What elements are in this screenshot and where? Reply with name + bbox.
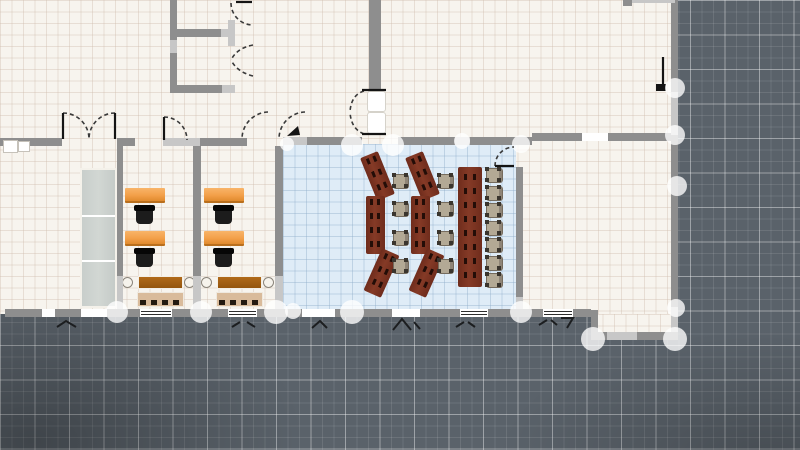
window-opening-mark [456, 322, 475, 327]
door-swing-arc[interactable] [231, 60, 253, 76]
floorplan-canvas[interactable] [0, 0, 800, 450]
door-leaf-open[interactable] [287, 126, 300, 136]
door-swing-arc[interactable] [350, 91, 364, 112]
door-swing-arc[interactable] [231, 3, 253, 25]
door-swing-arc[interactable] [350, 112, 364, 134]
door-swing-arc[interactable] [242, 112, 268, 139]
window-opening-mark [232, 322, 255, 327]
window-opening-mark [393, 319, 420, 330]
door-swing-arc[interactable] [164, 117, 187, 140]
door-swing-overlay [0, 0, 800, 450]
window-opening-mark [561, 318, 573, 328]
door-swing-arc[interactable] [495, 147, 514, 166]
window-opening-mark [539, 320, 557, 325]
window-opening-mark [312, 321, 327, 328]
door-swing-arc[interactable] [63, 113, 89, 139]
window-opening-mark [57, 321, 76, 327]
door-swing-arc[interactable] [231, 45, 253, 60]
door-swing-arc[interactable] [89, 113, 115, 139]
